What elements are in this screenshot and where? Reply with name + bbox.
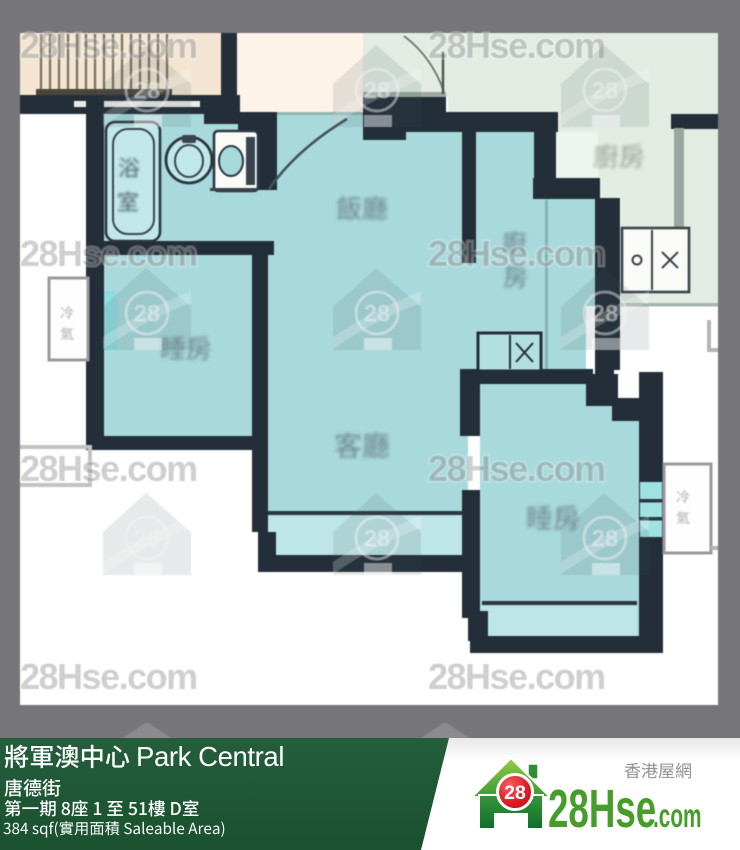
svg-text:28Hse.com: 28Hse.com bbox=[20, 25, 197, 66]
svg-text:.com: .com bbox=[653, 797, 702, 834]
svg-text:28Hse.com: 28Hse.com bbox=[428, 233, 605, 274]
svg-text:28Hse.com: 28Hse.com bbox=[428, 656, 605, 697]
svg-text:28Hse.com: 28Hse.com bbox=[428, 448, 605, 489]
svg-text:28Hse.com: 28Hse.com bbox=[20, 448, 197, 489]
svg-text:28: 28 bbox=[504, 782, 526, 804]
svg-text:28Hse.com: 28Hse.com bbox=[20, 233, 197, 274]
svg-text:28Hse.com: 28Hse.com bbox=[428, 25, 605, 66]
svg-text:Park Central: Park Central bbox=[136, 741, 284, 772]
svg-text:28Hse: 28Hse bbox=[548, 778, 656, 839]
svg-text:28Hse.com: 28Hse.com bbox=[20, 656, 197, 697]
